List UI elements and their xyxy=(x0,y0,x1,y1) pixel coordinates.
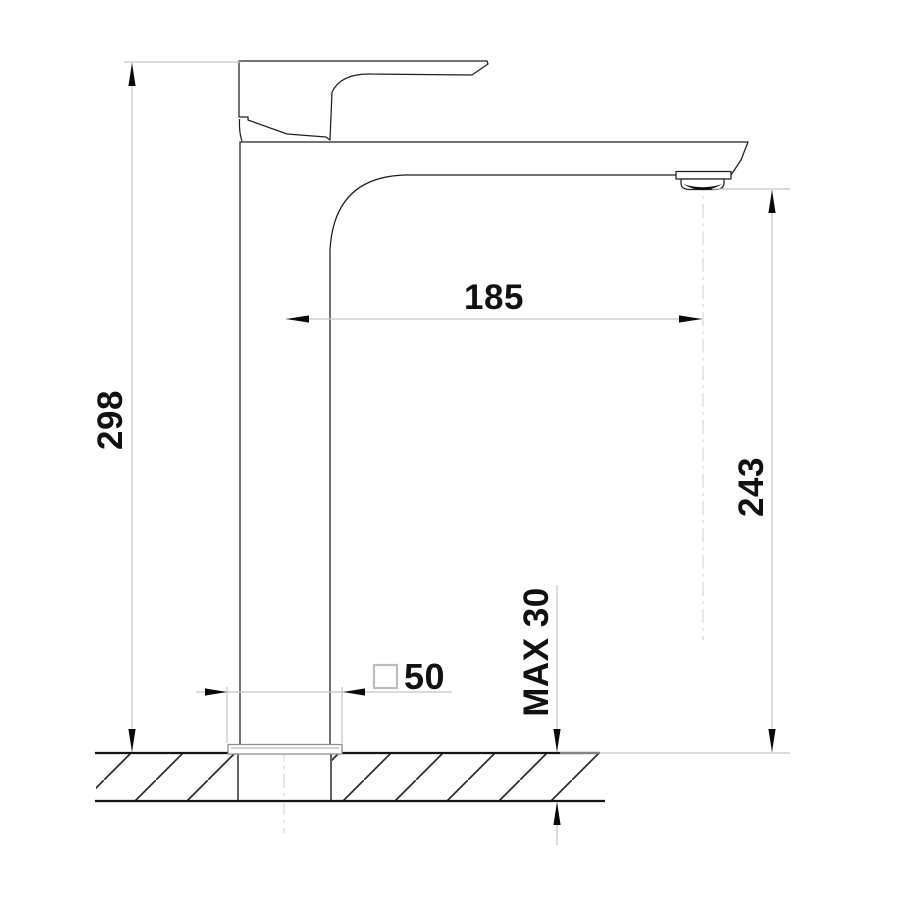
dim-298-label: 298 xyxy=(91,390,130,450)
dim-outlet-height: 243 xyxy=(560,189,790,753)
dim-298-arrow-down xyxy=(128,729,135,752)
lever-handle xyxy=(239,61,488,140)
dim-243-arrow-up xyxy=(768,190,775,213)
faucet xyxy=(228,61,748,754)
faucet-dimension-drawing: 298 185 243 50 MAX 30 xyxy=(0,0,900,899)
base-flange xyxy=(228,745,342,755)
aerator-housing xyxy=(676,172,731,180)
centerlines xyxy=(284,150,703,833)
dim-243-label: 243 xyxy=(732,457,771,517)
dim-185-label: 185 xyxy=(464,278,524,317)
counter-hatch-right xyxy=(332,754,603,800)
dim-50-label: 50 xyxy=(404,656,445,697)
technical-drawing: 298 185 243 50 MAX 30 xyxy=(0,0,900,899)
dim-deck-thickness: MAX 30 xyxy=(517,585,561,845)
dim-298-arrow-up xyxy=(128,63,135,86)
dim-max30-arrow-up xyxy=(553,802,560,825)
dim-overall-height: 298 xyxy=(91,62,242,752)
dim-50-arrow-right xyxy=(343,688,365,695)
dim-243-arrow-down xyxy=(768,729,775,752)
dim-max30-arrow-down xyxy=(553,729,560,752)
counter-section xyxy=(95,753,605,801)
faucet-body xyxy=(240,142,748,745)
dim-max30-label: MAX 30 xyxy=(517,587,556,716)
dim-50-arrow-left xyxy=(205,688,227,695)
counter-hatch-left xyxy=(96,754,237,800)
dim-spout-reach: 185 xyxy=(286,278,702,323)
handle-base-left-edge xyxy=(239,119,242,141)
dim-185-arrow-right xyxy=(679,315,702,322)
square-section-symbol xyxy=(374,665,397,688)
